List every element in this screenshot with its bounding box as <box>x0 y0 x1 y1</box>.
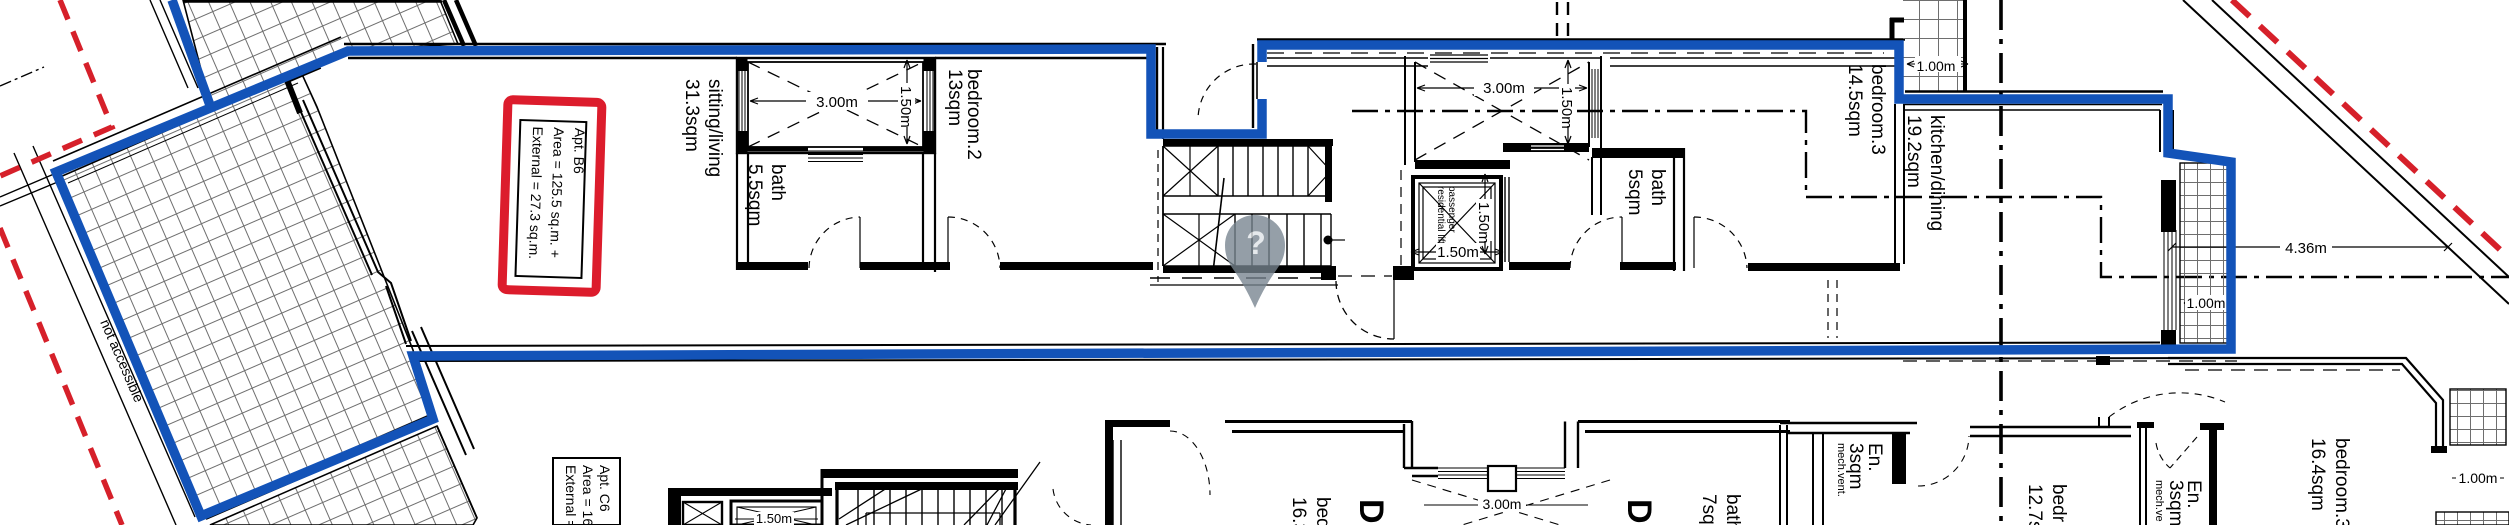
svg-text:Apt. C6: Apt. C6 <box>597 465 613 512</box>
svg-text:bath: bath <box>767 164 788 201</box>
svg-text:D: D <box>1352 499 1390 524</box>
svg-text:13sqm: 13sqm <box>944 69 965 126</box>
svg-text:3sqm: 3sqm <box>1845 443 1866 489</box>
svg-text:16.4sqm: 16.4sqm <box>2307 438 2328 511</box>
svg-text:mech.ve: mech.ve <box>2153 480 2165 522</box>
svg-text:1.50m: 1.50m <box>756 511 792 525</box>
svg-text:14.5sqm: 14.5sqm <box>1844 64 1865 137</box>
svg-text:3.00m: 3.00m <box>1483 496 1522 512</box>
svg-text:3.00m: 3.00m <box>816 94 858 111</box>
svg-text:residential lift: residential lift <box>1435 186 1446 245</box>
svg-text:1.50m: 1.50m <box>1475 202 1492 244</box>
svg-text:bath: bath <box>1647 169 1668 206</box>
svg-text:19.2sqm: 19.2sqm <box>1903 115 1924 188</box>
svg-text:Area = 16: Area = 16 <box>580 465 596 525</box>
svg-text:sitting/living: sitting/living <box>704 79 725 177</box>
svg-text:16.3: 16.3 <box>1288 497 1309 525</box>
svg-text:7sqm: 7sqm <box>1698 494 1719 525</box>
svg-text:kitchen/dining: kitchen/dining <box>1926 115 1947 231</box>
svg-text:bedroom.3: bedroom.3 <box>1867 64 1888 155</box>
svg-text:3.00m: 3.00m <box>1483 80 1525 97</box>
svg-text:En.: En. <box>1864 443 1885 472</box>
svg-text:31.3sqm: 31.3sqm <box>681 79 702 152</box>
svg-text:1.50m: 1.50m <box>897 86 914 128</box>
svg-text:1.50m: 1.50m <box>1558 87 1575 129</box>
svg-text:4.36m: 4.36m <box>2285 240 2327 257</box>
svg-text:passenger: passenger <box>1446 186 1457 233</box>
svg-text:1.00m: 1.00m <box>2459 470 2498 486</box>
svg-text:bed: bed <box>1312 497 1333 525</box>
svg-text:3sqm: 3sqm <box>2165 480 2186 525</box>
svg-text:bedr: bedr <box>2048 484 2069 523</box>
svg-text:1.00m: 1.00m <box>2187 295 2226 311</box>
svg-text:D: D <box>1620 499 1658 524</box>
svg-text:bath: bath <box>1722 494 1743 525</box>
svg-text:mech.vent.: mech.vent. <box>1835 443 1847 497</box>
svg-text:5.5sqm: 5.5sqm <box>744 164 765 226</box>
svg-text:12.7s: 12.7s <box>2024 484 2045 525</box>
svg-text:?: ? <box>1246 225 1266 261</box>
svg-text:External =: External = <box>563 465 579 525</box>
svg-text:1.00m: 1.00m <box>1917 58 1956 74</box>
svg-text:Apt. B6: Apt. B6 <box>571 128 588 175</box>
svg-text:bedroom.2: bedroom.2 <box>963 69 984 160</box>
svg-text:5sqm: 5sqm <box>1624 169 1645 215</box>
svg-text:bedroom.3: bedroom.3 <box>2331 438 2352 525</box>
svg-text:1.50m: 1.50m <box>1437 244 1479 261</box>
